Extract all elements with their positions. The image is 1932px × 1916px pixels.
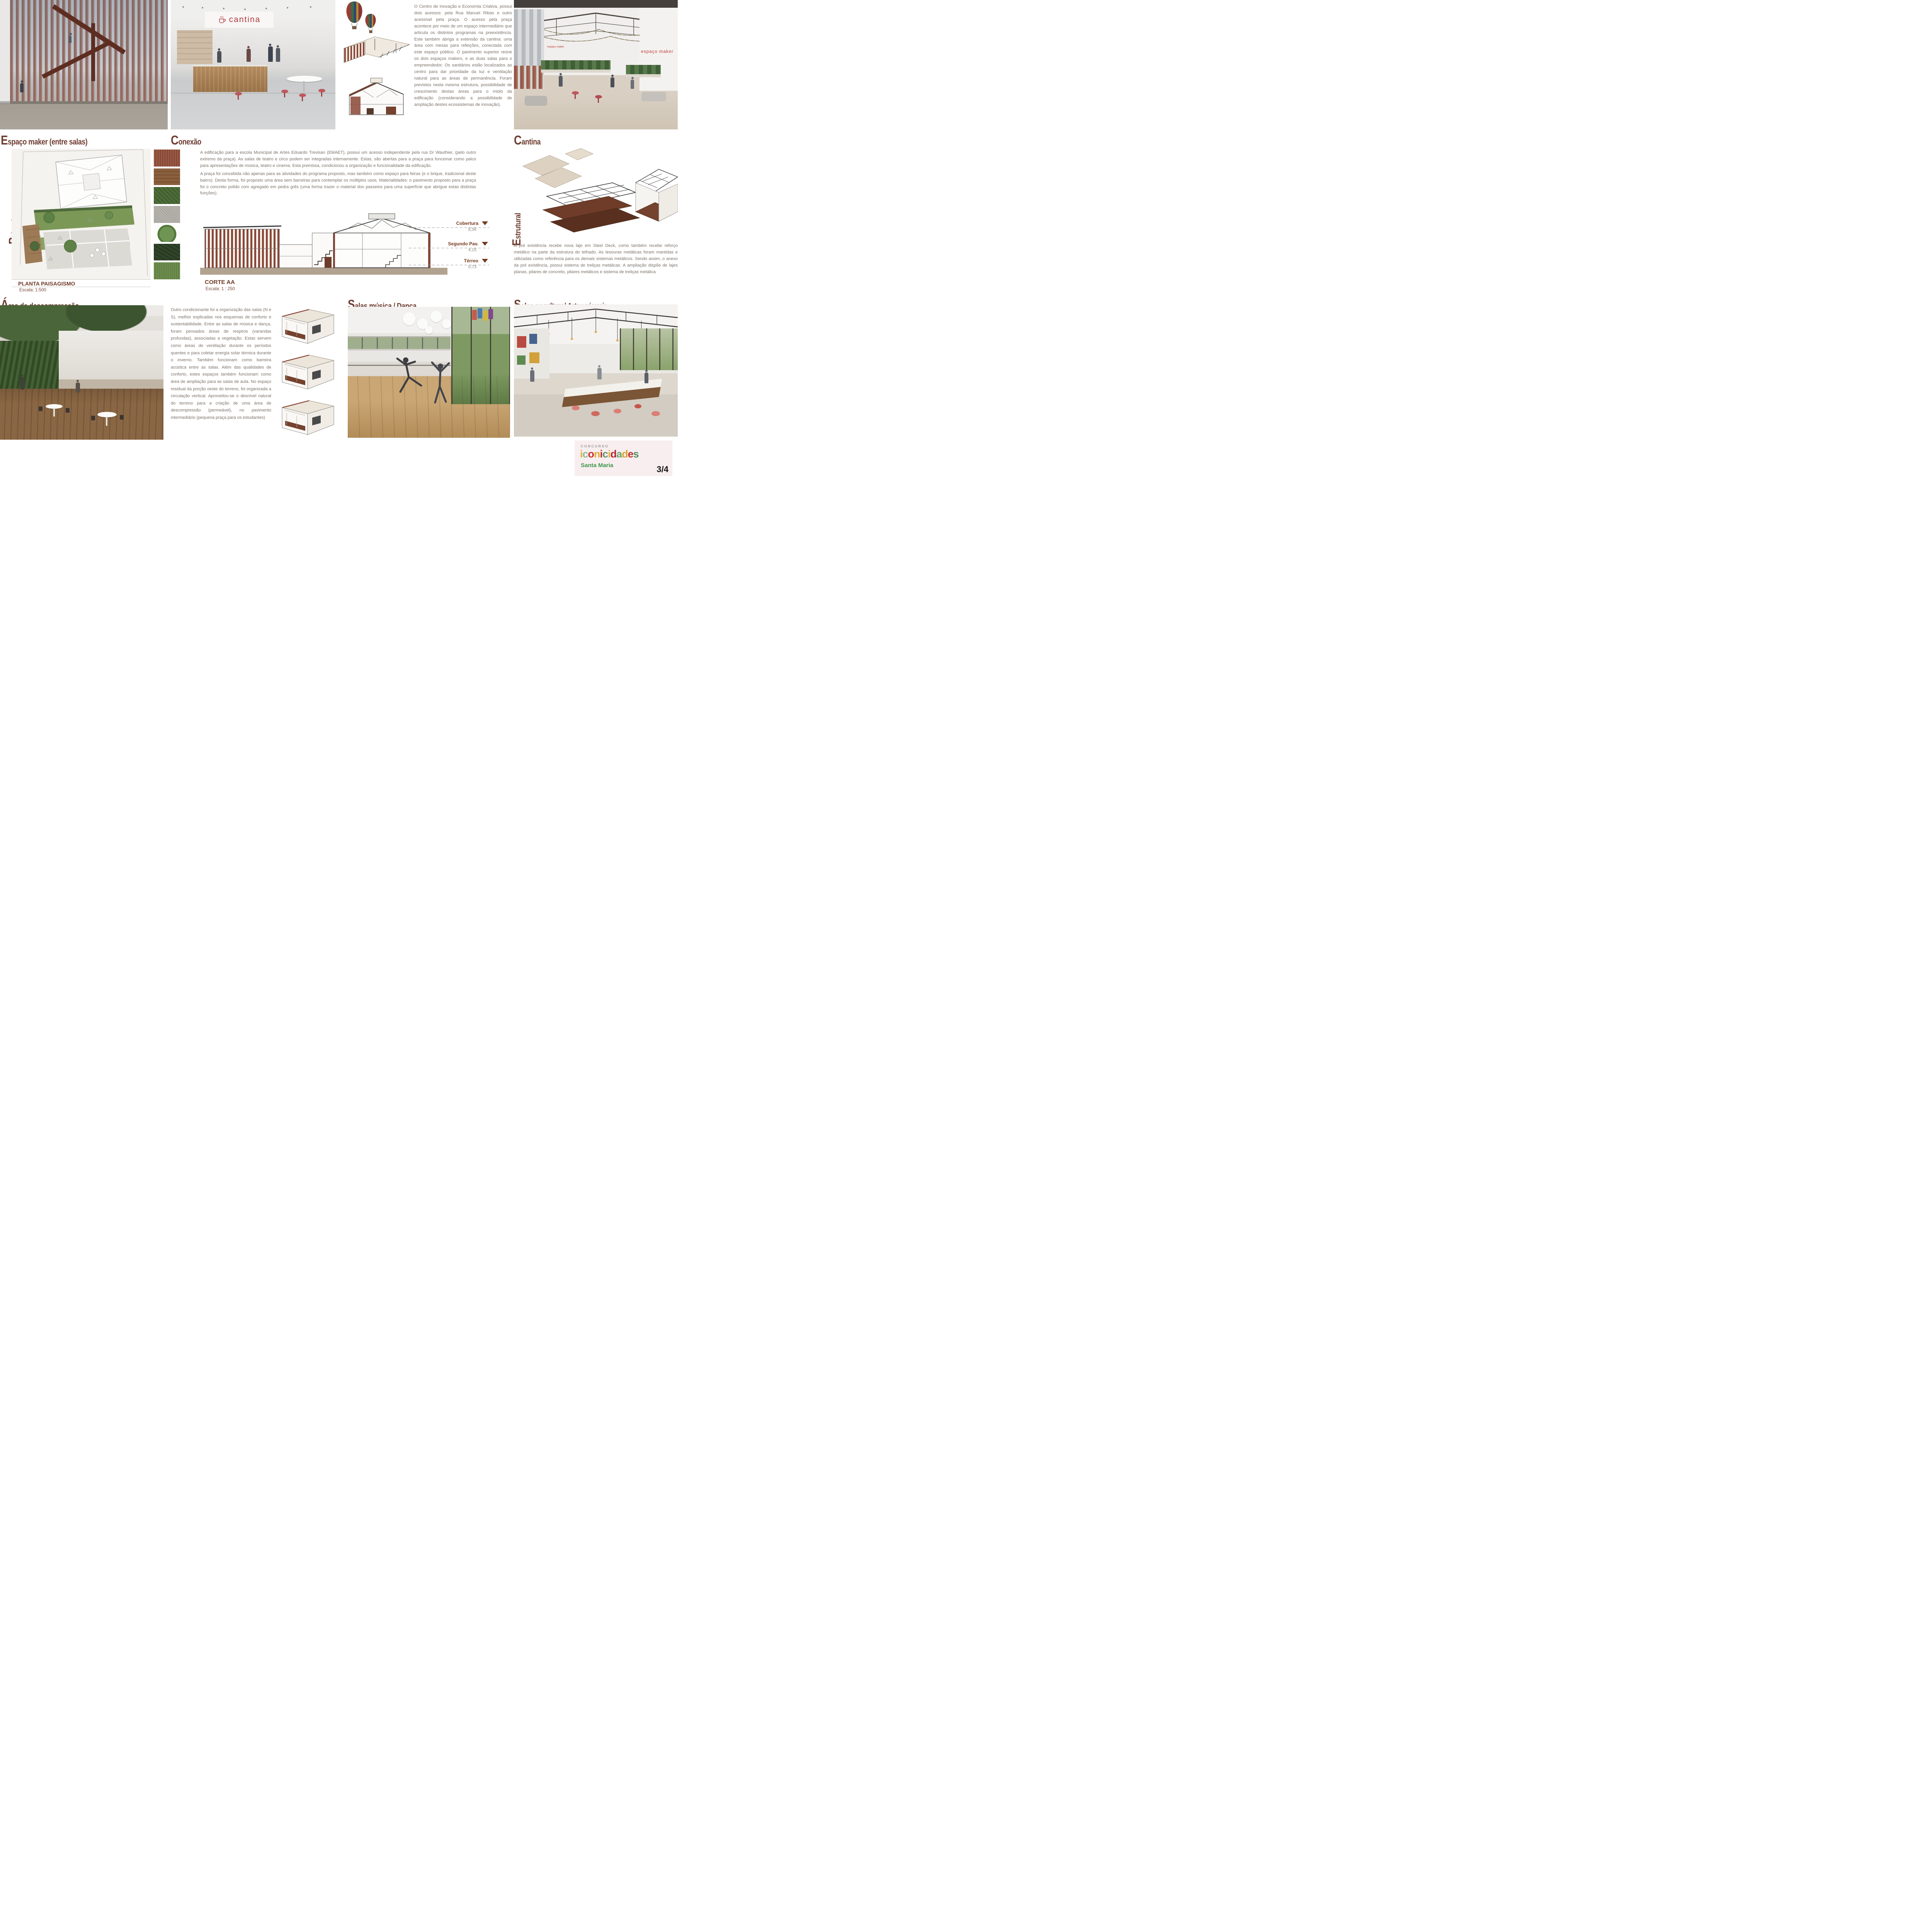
wood-deck-shape <box>0 389 163 440</box>
person-silhouette <box>530 370 534 382</box>
section-title-espaco-maker: Espaço maker (entre salas) <box>1 135 87 147</box>
person-silhouette <box>631 80 634 89</box>
level-name: Cobertura <box>456 221 478 226</box>
table-leg-shape <box>106 417 107 426</box>
chair-shape <box>120 415 124 420</box>
competition-logo: CONCURSO iconicidades Santa Maria 3/4 <box>575 440 672 476</box>
emaet-paragraph: A edificação para a escola Municipal de … <box>200 150 476 207</box>
person-silhouette <box>268 46 273 62</box>
coffee-cup-icon <box>218 16 226 24</box>
person-silhouette <box>247 49 251 62</box>
swatch-shrub <box>154 244 180 261</box>
mural-color-block <box>478 308 482 318</box>
swatch-grass <box>154 262 180 279</box>
chair-shape <box>66 408 70 413</box>
person-silhouette <box>69 36 71 43</box>
emaet-paragraph-2: A praça foi concebida não apenas para as… <box>200 171 476 197</box>
level-name: Térreo <box>464 258 478 264</box>
logo-city-label: Santa Maria <box>581 462 613 469</box>
person-silhouette <box>20 83 24 92</box>
person-silhouette <box>597 368 602 379</box>
sofa-shape <box>641 92 666 101</box>
swatch-tree <box>154 225 180 242</box>
level-value: 0,73 <box>422 265 488 269</box>
artwork <box>517 355 526 365</box>
red-chair-shape <box>572 91 579 95</box>
axon-stack-svg <box>275 306 339 440</box>
logo-brand-iconicidades: iconicidades <box>580 448 639 460</box>
person-silhouette <box>276 48 280 62</box>
level-segundo-pav: Segundo Pav. 4,15 <box>422 240 488 252</box>
level-name: Segundo Pav. <box>448 241 478 247</box>
axon-section-drawing <box>340 74 413 126</box>
chair-shape <box>39 406 43 411</box>
planter-shape <box>541 60 611 73</box>
dancers-silhouettes <box>383 353 468 415</box>
wood-counter-shape <box>193 65 267 92</box>
person-silhouette <box>20 377 24 389</box>
swatch-brick <box>154 150 180 167</box>
cantina-paragraph: O Centro de Inovação e Economia Criativa… <box>414 3 512 129</box>
section-title-cantina: Cantina <box>514 135 541 147</box>
corten-screen-shape <box>514 66 544 89</box>
plan-title: PLANTA PAISAGISMO <box>18 281 75 287</box>
level-terreo: Térreo 0,73 <box>422 257 488 269</box>
plan-scale: Escala: 1:500 <box>19 288 46 292</box>
section-title-conexao: Conexão <box>171 135 201 147</box>
mural-color-block <box>488 309 493 319</box>
mural-color-block <box>483 311 488 321</box>
render-area-descompressao <box>0 305 163 440</box>
cantina-sign-label: cantina <box>229 15 261 24</box>
floor-edge-line <box>171 93 335 94</box>
round-ceiling-light <box>403 312 416 325</box>
swatch-wood <box>154 168 180 185</box>
swatch-hedge <box>154 187 180 204</box>
logo-concurso-label: CONCURSO <box>581 444 609 448</box>
landscape-plan-drawing <box>12 149 151 279</box>
level-marker-icon <box>482 242 488 246</box>
emaet-paragraph-1: A edificação para a escola Municipal de … <box>200 150 476 169</box>
round-ceiling-light <box>430 311 442 322</box>
diagram-strip <box>338 0 413 133</box>
table-leg-shape <box>53 408 55 417</box>
plan-divider-line <box>12 287 151 287</box>
cantina-sign: cantina <box>205 12 274 28</box>
pink-stool-shape <box>651 411 660 416</box>
person-silhouette <box>76 383 80 393</box>
planter-shape <box>626 65 661 77</box>
page-number: 3/4 <box>656 464 668 474</box>
espaco-maker-wall-sign: espaço maker <box>641 49 673 54</box>
presentation-board: Espaço maker (entre salas) cantina Conex… <box>0 0 678 479</box>
render-conexao: cantina <box>171 0 335 129</box>
red-chair-shape <box>595 95 602 99</box>
espaco-maker-wall-sign-small: espaço maker <box>547 46 564 48</box>
person-silhouette <box>217 51 221 63</box>
swatch-gravel <box>154 206 180 223</box>
estrutural-paragraph: A pré existência recebe nova laje em Ste… <box>514 243 678 286</box>
level-marker-icon <box>482 259 488 263</box>
round-ceiling-light <box>442 319 451 328</box>
render-espaco-maker <box>0 0 168 129</box>
render-cantina: espaço maker espaço maker <box>514 0 678 129</box>
level-marker-icon <box>482 221 488 225</box>
render-salas-musica <box>348 307 510 438</box>
person-silhouette <box>559 76 563 87</box>
clerestory-windows <box>348 336 451 350</box>
level-value: 4,15 <box>422 248 488 252</box>
pink-stool-shape <box>572 406 580 410</box>
red-stool-shape <box>299 94 306 97</box>
corte-title: CORTE AA <box>205 279 235 286</box>
plan-divider-line <box>12 279 151 280</box>
red-stool-shape <box>318 89 325 92</box>
stair-core-shape <box>91 23 95 81</box>
person-silhouette <box>645 372 648 383</box>
artwork <box>517 336 526 348</box>
artwork <box>529 352 539 363</box>
round-ceiling-light <box>425 326 433 334</box>
shelf-unit-shape <box>177 30 213 64</box>
section-drawing-corte-aa: Cobertura 8,56 Segundo Pav. 4,15 Térreo … <box>200 211 492 279</box>
hot-air-balloons-drawing <box>340 1 381 46</box>
estrutural-svg <box>520 146 678 242</box>
mural-color-block <box>472 310 477 320</box>
pink-stool-shape <box>634 404 641 408</box>
window-wall-garden <box>620 328 678 372</box>
material-swatches <box>154 150 180 279</box>
pink-stool-shape <box>614 409 621 413</box>
ground-shadow <box>0 101 168 104</box>
render-salas-escultura <box>514 304 678 437</box>
structural-exploded-axon <box>520 146 678 242</box>
site-plan-svg <box>12 149 151 279</box>
ceiling-lights <box>182 6 184 8</box>
white-wall-shape <box>0 0 10 104</box>
descompressao-paragraph: Outro condicionante foi a organização da… <box>171 306 271 438</box>
pink-stool-shape <box>591 411 600 416</box>
chair-shape <box>91 416 95 420</box>
table-leg-shape <box>303 81 305 92</box>
person-silhouette <box>611 77 614 87</box>
artwork <box>529 334 537 344</box>
corte-scale: Escala: 1 : 250 <box>206 287 235 291</box>
level-cobertura: Cobertura 8,56 <box>422 220 488 232</box>
axon-module-stack <box>275 306 339 440</box>
sofa-shape <box>525 96 547 106</box>
level-value: 8,56 <box>422 227 488 232</box>
white-wall-shape <box>59 331 163 379</box>
